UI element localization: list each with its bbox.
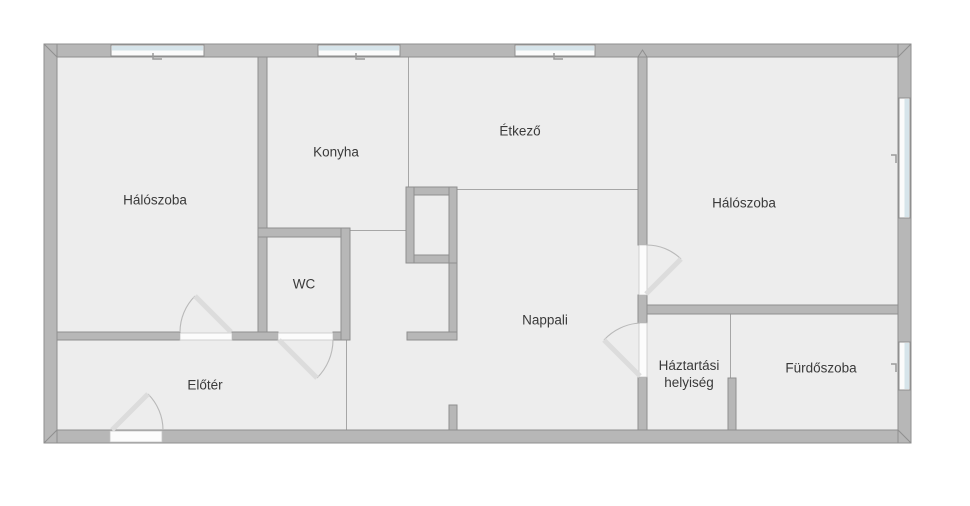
window-glass-kitchen-window (319, 46, 399, 51)
door-opening-bedroom1-door (180, 333, 232, 340)
window-glass-bathroom-window (905, 343, 910, 389)
wall-wc-right (341, 228, 350, 340)
wall-bedroom2-bottom (647, 305, 898, 314)
wall-hall-wall-b (232, 332, 278, 340)
floor-plan-canvas: HálószobaKonyhaÉtkezőHálószobaWCNappaliE… (0, 0, 970, 506)
wall-shaft-right (449, 187, 457, 263)
room-label-bedroom-right: Hálószoba (712, 195, 776, 212)
room-boundary-line-hall-living (346, 340, 347, 430)
door-opening-entrance-door (110, 431, 162, 442)
room-boundary-line-kitchen-pass (350, 230, 406, 231)
wall-living-wall-b (638, 295, 647, 323)
window-glass-dining-window (516, 46, 594, 51)
wall-ext-left (44, 44, 57, 443)
wall-shaft-left (406, 187, 414, 263)
room-label-bedroom-left: Hálószoba (123, 192, 187, 209)
room-label-wc: WC (293, 276, 316, 293)
room-label-kitchen: Konyha (313, 144, 359, 161)
room-label-living: Nappali (522, 312, 568, 329)
wall-shaft-foot (407, 332, 457, 340)
wall-living-stub (449, 405, 457, 430)
wall-ext-bottom (44, 430, 911, 443)
wall-wc-top (258, 228, 350, 237)
door-opening-wc-door (278, 333, 333, 340)
room-boundary-line-kitchen-dining (408, 57, 409, 187)
room-label-hall: Előtér (187, 377, 222, 394)
wall-divider-bedroom1 (258, 57, 267, 333)
room-label-bathroom: Fürdőszoba (785, 360, 856, 377)
floor-plan-svg (0, 0, 970, 506)
wall-hall-wall-a (57, 332, 180, 340)
floor-area (57, 57, 898, 430)
room-label-dining: Étkező (499, 123, 540, 140)
door-opening-bedroom2-door (639, 245, 647, 295)
window-glass-bedroom2-window (905, 99, 910, 217)
wall-living-wall-a (638, 57, 647, 245)
room-label-utility: Háztartási helyiség (646, 357, 732, 391)
room-boundary-line-dining-living (457, 189, 640, 190)
window-glass-bedroom1-window (112, 46, 203, 51)
wall-shaft-leg (449, 263, 457, 340)
